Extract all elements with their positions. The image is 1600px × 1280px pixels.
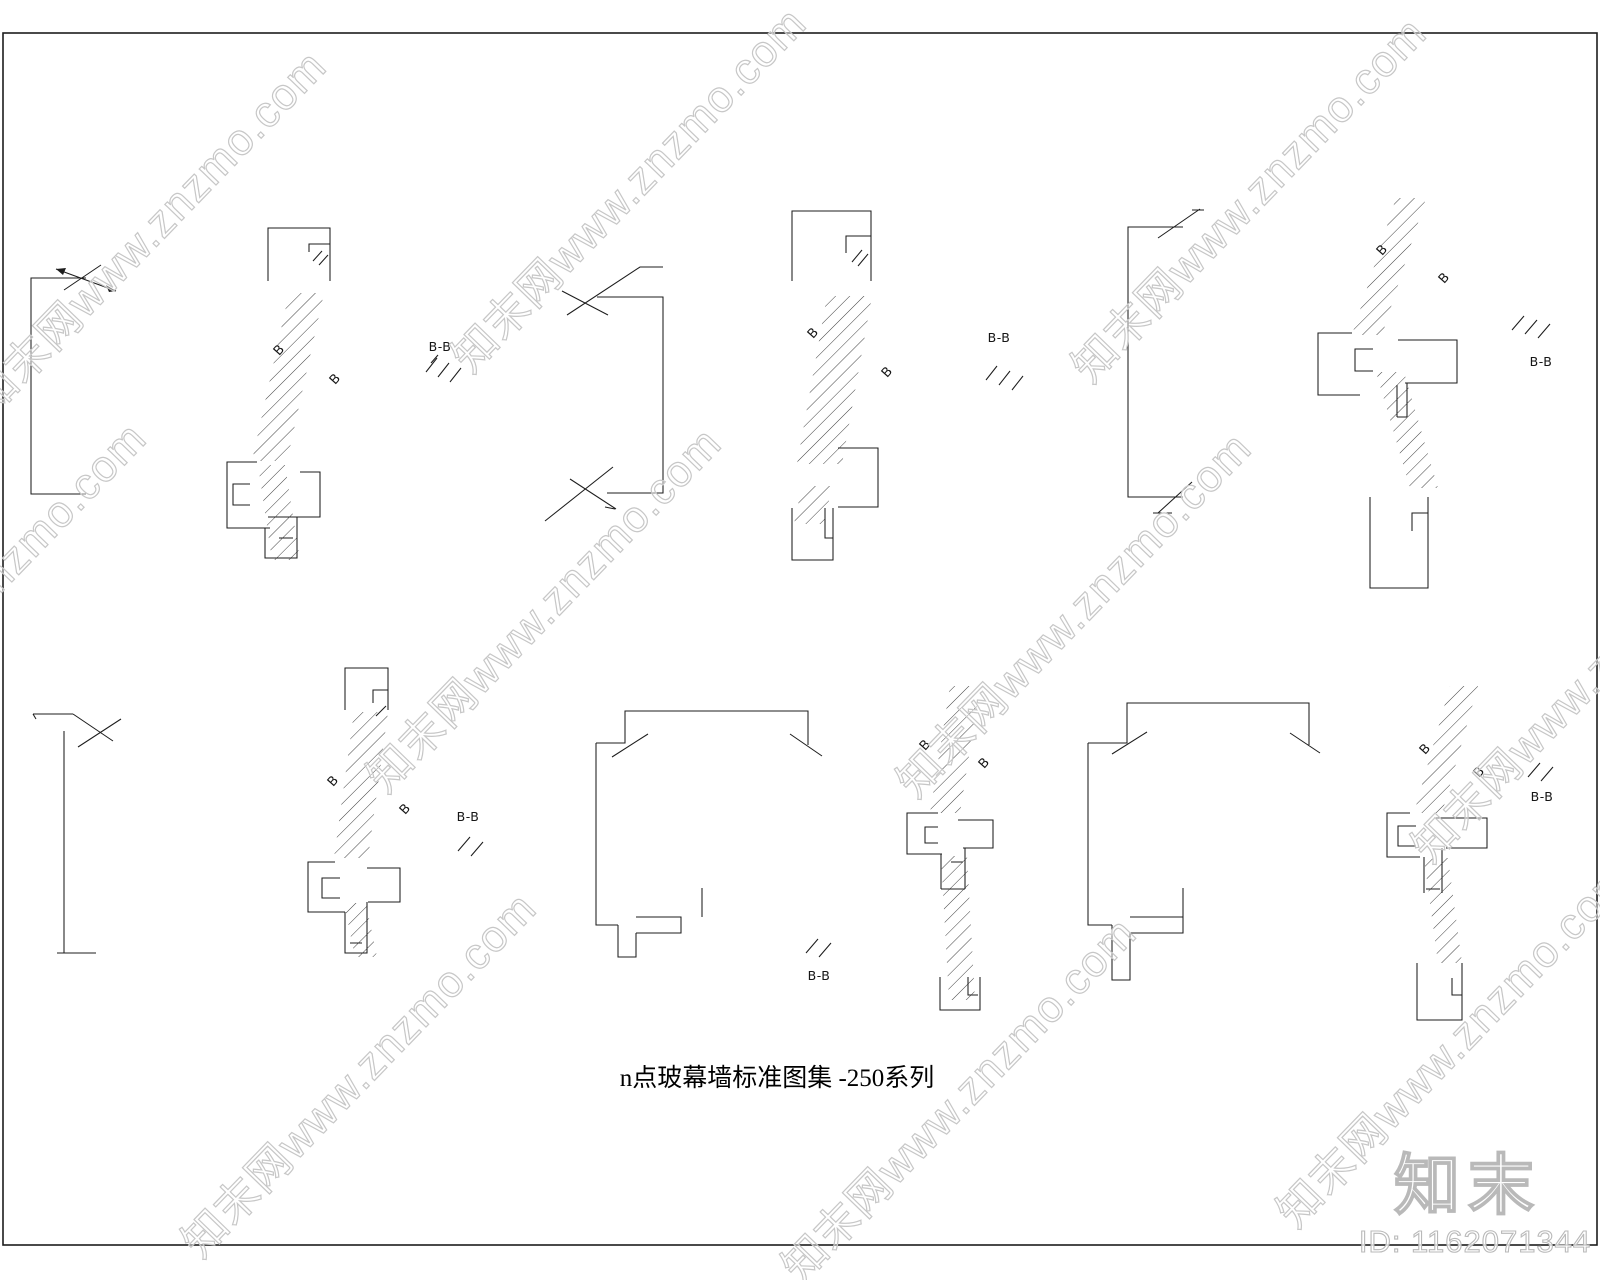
figure-top6-corner-mullion: B B B-B xyxy=(1318,198,1552,588)
glass-hatch-band xyxy=(252,293,324,461)
sheet-border xyxy=(3,33,1597,1245)
section-label: B-B xyxy=(808,968,831,983)
section-letter: B xyxy=(1436,270,1453,287)
branding: 知末 ID: 1162071344 xyxy=(1359,1148,1591,1259)
section-label: B-B xyxy=(988,330,1011,345)
section-letter: B xyxy=(397,801,414,818)
section-letter: B xyxy=(325,773,342,790)
figure-bot3-transom-frame: B-B xyxy=(596,711,831,983)
cad-drawing-canvas: B B B-B B B B-B B B B-B xyxy=(0,0,1600,1280)
section-hatch-mark xyxy=(1512,316,1550,338)
glass-hatch-band xyxy=(797,296,872,464)
glass-hatch-band xyxy=(941,856,975,1000)
section-hatch-mark xyxy=(806,939,831,957)
asset-id-label: ID: 1162071344 xyxy=(1359,1224,1591,1259)
section-hatch-mark xyxy=(458,837,483,856)
figure-top2-mullion-section: B B B-B xyxy=(227,228,461,560)
glass-hatch-band xyxy=(1352,198,1426,335)
figure-bot1-post xyxy=(33,714,121,953)
glass-hatch-band xyxy=(794,486,832,524)
drawing-title: n点玻幕墙标准图集 -250系列 xyxy=(620,1064,935,1092)
watermark-tile: 知末网www.znzmo.com xyxy=(0,413,156,797)
glass-hatch-band xyxy=(1424,858,1462,963)
glass-hatch-band xyxy=(258,465,300,560)
figure-top4-mullion-section: B B B-B xyxy=(792,211,1023,560)
glass-hatch-band xyxy=(1376,372,1438,488)
watermark-tile: 知末网www.znzmo.com xyxy=(358,418,731,802)
watermark-tile: 知末网www.znzmo.com xyxy=(888,423,1261,807)
cad-sheet-preview: B B B-B B B B-B B B B-B xyxy=(0,0,1600,1280)
section-hatch-mark xyxy=(986,366,1023,390)
glass-hatch-band xyxy=(344,903,377,957)
section-label: B-B xyxy=(1531,789,1554,804)
watermark-tile: 知末网www.znzmo.com xyxy=(443,0,816,382)
section-label: B-B xyxy=(1530,354,1553,369)
section-letter: B xyxy=(976,755,993,772)
section-letter: B xyxy=(327,371,344,388)
znzmo-logo: 知末 xyxy=(1394,1148,1542,1222)
section-letter: B xyxy=(879,364,896,381)
watermark-tile: 知末网www.znzmo.com xyxy=(1403,488,1600,872)
section-label: B-B xyxy=(457,809,480,824)
